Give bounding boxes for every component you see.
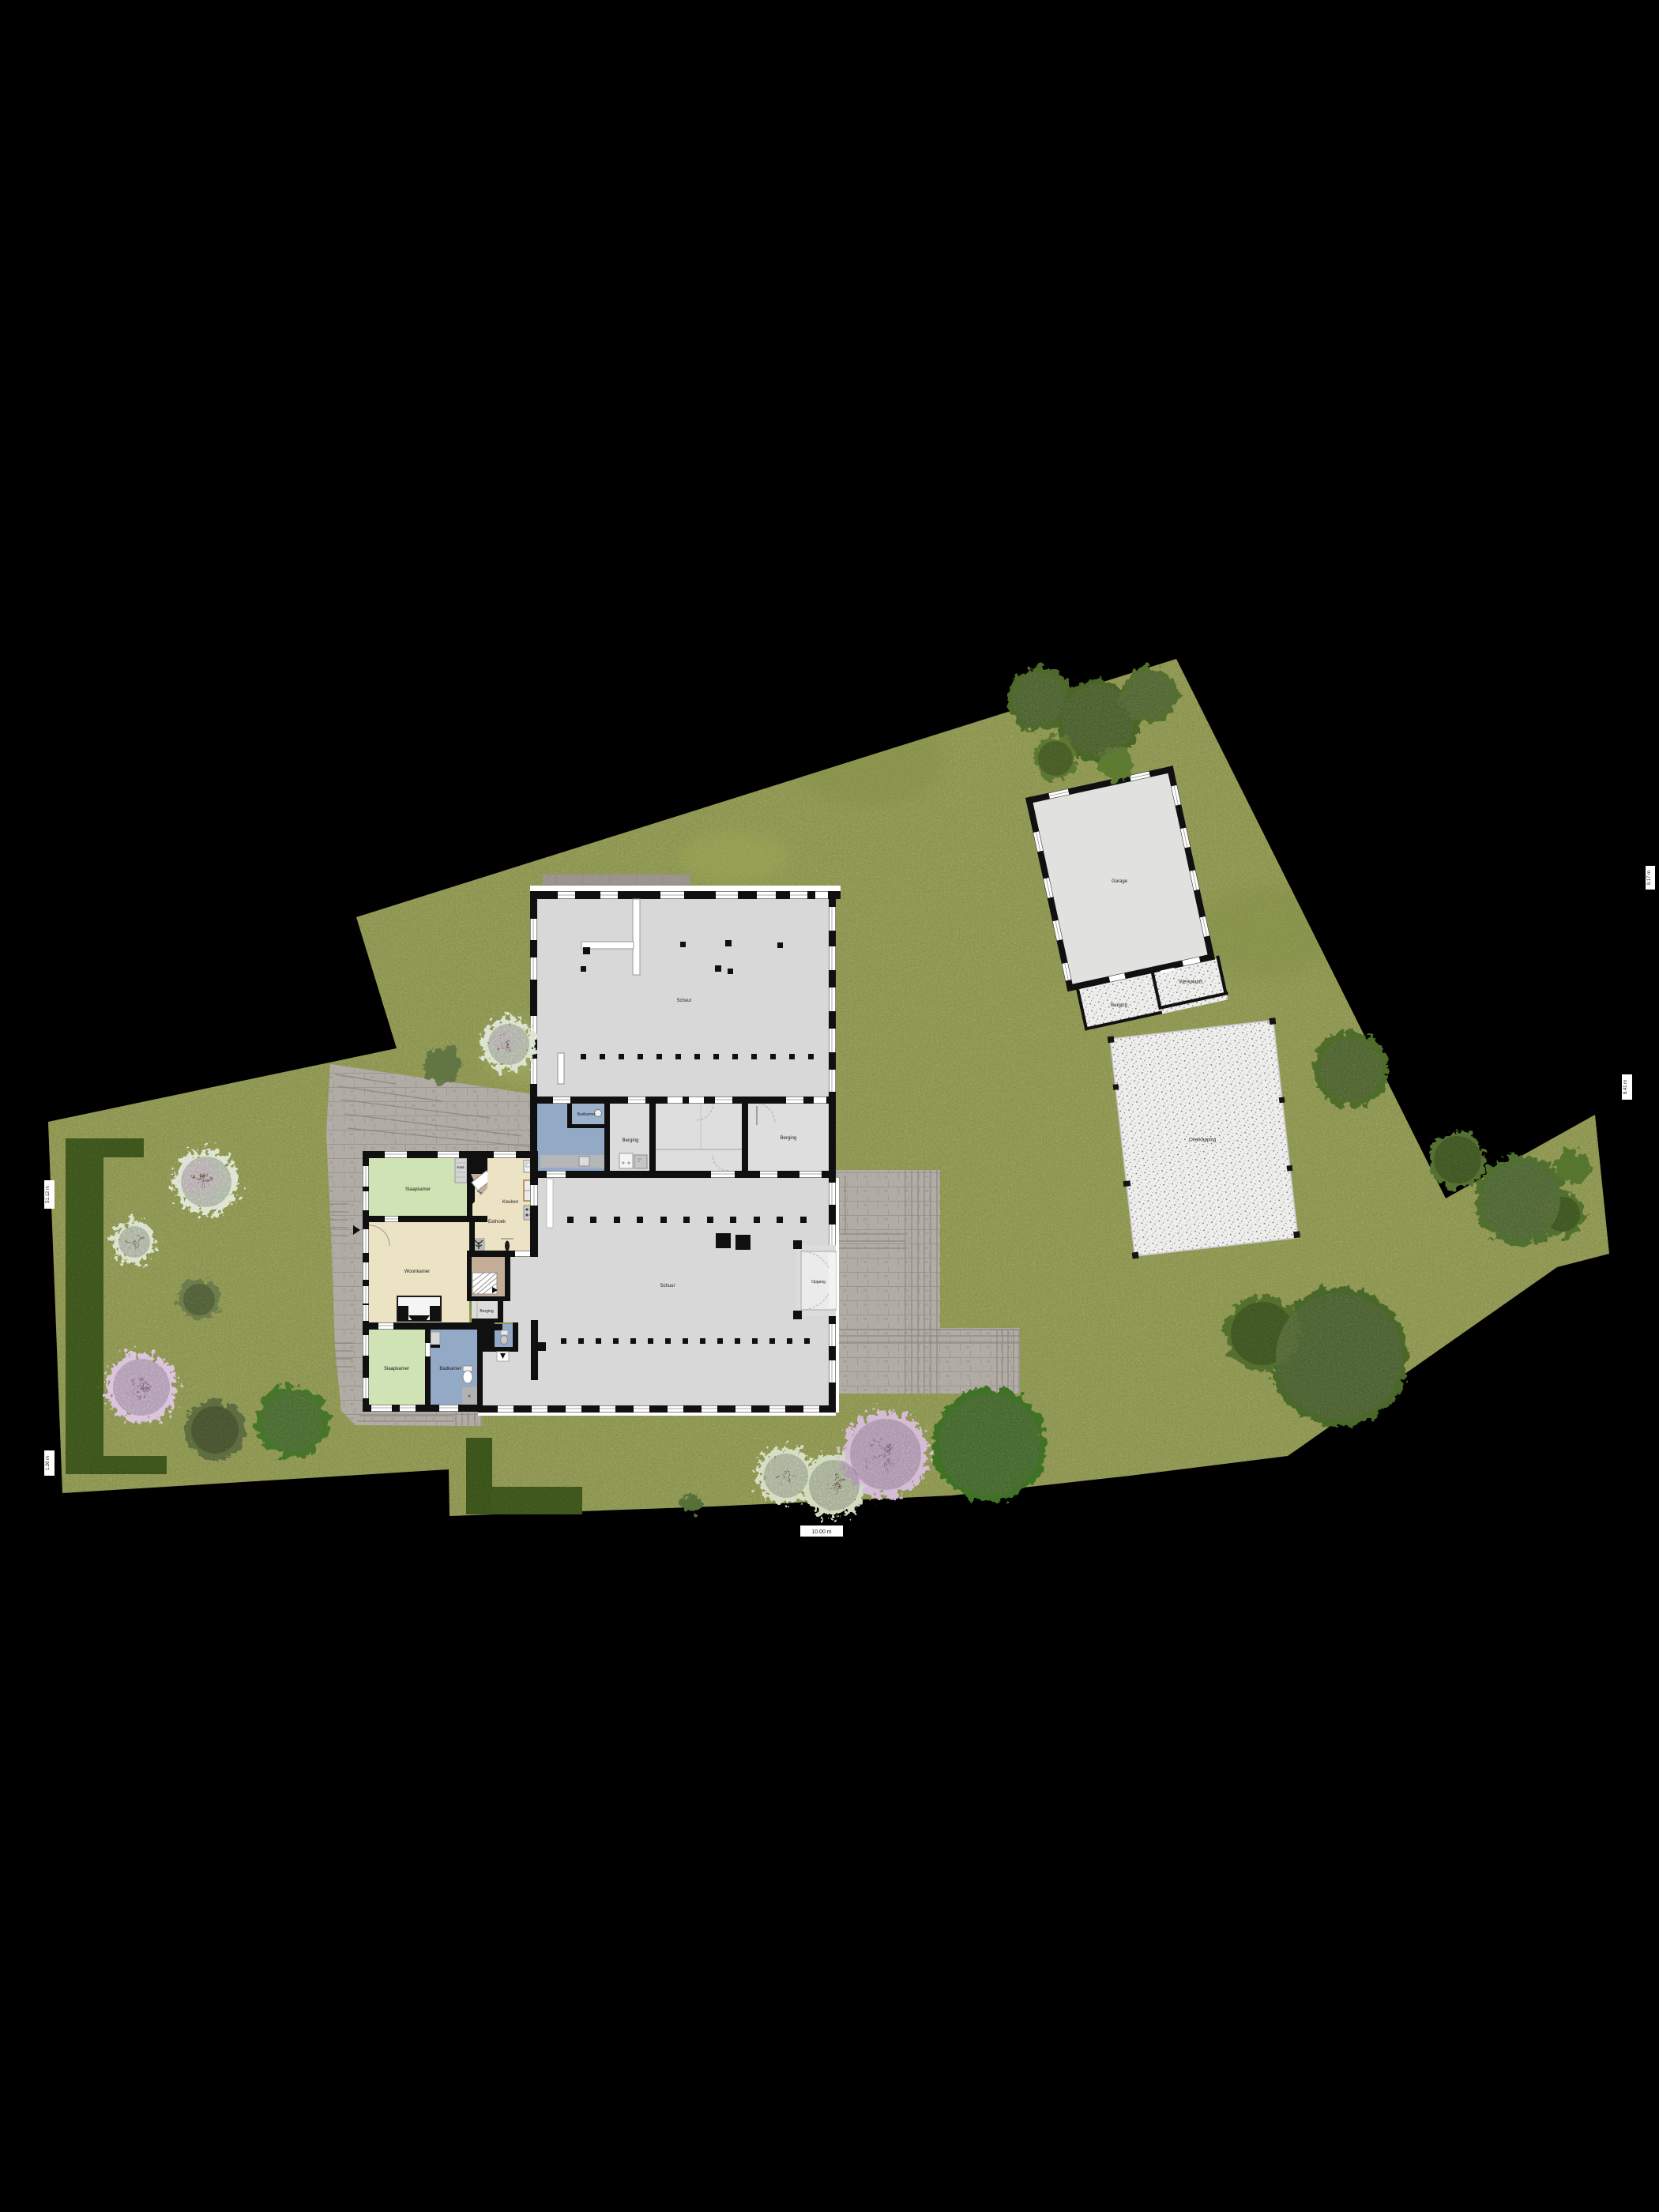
svg-text:8.41 m: 8.41 m: [1623, 1080, 1628, 1094]
svg-text:Garage: Garage: [1112, 879, 1128, 884]
svg-text:Berging: Berging: [1111, 1003, 1127, 1008]
svg-text:Eethoek: Eethoek: [488, 1220, 506, 1224]
svg-text:Badkamer: Badkamer: [577, 1112, 596, 1117]
svg-text:Opgang: Opgang: [811, 1280, 826, 1285]
svg-text:9.17 m: 9.17 m: [1647, 871, 1652, 885]
svg-text:Werkplaats: Werkplaats: [1179, 980, 1202, 985]
svg-text:1.26 m: 1.26 m: [46, 1456, 51, 1470]
svg-text:Slaapkamer: Slaapkamer: [384, 1367, 409, 1371]
svg-text:10.00 m: 10.00 m: [811, 1529, 831, 1535]
svg-text:Woonkamer: Woonkamer: [404, 1270, 430, 1274]
svg-text:51.12 m: 51.12 m: [46, 1186, 51, 1203]
svg-text:Schuur: Schuur: [676, 999, 691, 1003]
svg-text:Berging: Berging: [781, 1136, 797, 1141]
svg-text:Berging: Berging: [623, 1138, 639, 1143]
svg-text:Badkamer: Badkamer: [439, 1367, 461, 1371]
svg-text:Overkapping: Overkapping: [1189, 1138, 1216, 1143]
svg-text:Kast: Kast: [457, 1165, 465, 1169]
svg-text:Slaapkamer: Slaapkamer: [405, 1187, 431, 1192]
svg-text:Berging: Berging: [480, 1309, 493, 1314]
svg-text:Schuur: Schuur: [660, 1284, 675, 1288]
svg-text:Keuken: Keuken: [502, 1200, 518, 1205]
